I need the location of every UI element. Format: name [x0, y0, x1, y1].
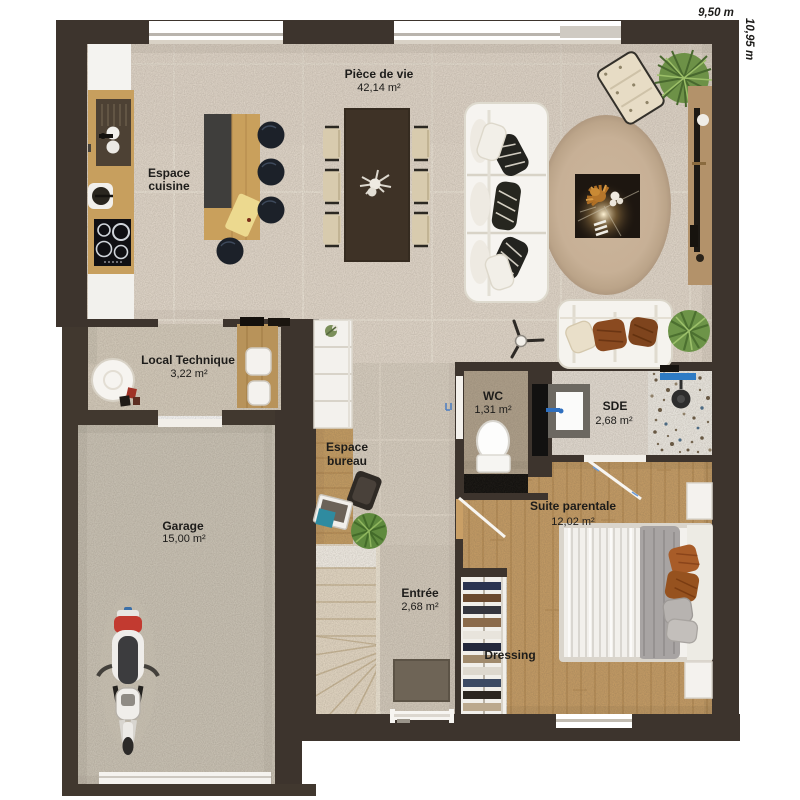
svg-text:Local Technique: Local Technique	[141, 353, 235, 367]
svg-text:15,00 m²: 15,00 m²	[162, 533, 206, 545]
svg-text:2,68 m²: 2,68 m²	[595, 415, 633, 427]
svg-text:WC: WC	[483, 389, 503, 403]
svg-text:Espace: Espace	[148, 166, 190, 180]
svg-text:Pièce de vie: Pièce de vie	[345, 67, 414, 81]
svg-text:Dressing: Dressing	[484, 648, 535, 662]
svg-text:2,68 m²: 2,68 m²	[401, 601, 439, 613]
svg-text:Entrée: Entrée	[401, 586, 439, 600]
svg-text:3,22 m²: 3,22 m²	[170, 368, 208, 380]
svg-text:9,50 m: 9,50 m	[698, 7, 734, 19]
svg-text:1,31 m²: 1,31 m²	[474, 404, 512, 416]
svg-text:42,14 m²: 42,14 m²	[357, 82, 401, 94]
svg-text:12,02 m²: 12,02 m²	[551, 516, 595, 528]
svg-text:Espace: Espace	[326, 440, 368, 454]
svg-text:cuisine: cuisine	[148, 179, 190, 193]
svg-text:SDE: SDE	[603, 399, 628, 413]
svg-text:bureau: bureau	[327, 454, 367, 468]
svg-text:Suite parentale: Suite parentale	[530, 499, 616, 513]
svg-text:10,95 m: 10,95 m	[743, 18, 755, 60]
svg-text:Garage: Garage	[162, 519, 204, 533]
